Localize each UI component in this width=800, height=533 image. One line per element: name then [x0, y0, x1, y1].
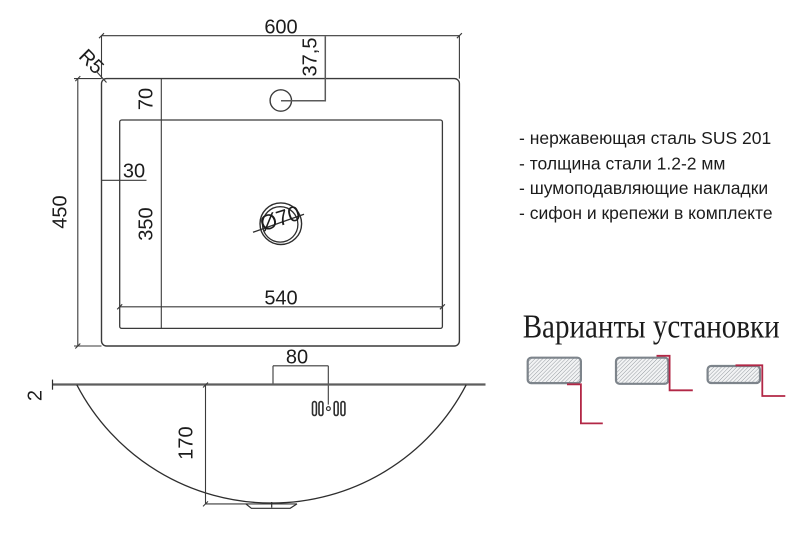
svg-text:Варианты установки: Варианты установки: [523, 308, 780, 345]
svg-text:37,5: 37,5: [300, 38, 322, 77]
svg-text:- сифон и крепежи в комплекте: - сифон и крепежи в комплекте: [519, 203, 773, 223]
svg-text:450: 450: [50, 195, 72, 228]
svg-text:350: 350: [136, 207, 158, 240]
svg-text:80: 80: [286, 347, 308, 369]
svg-text:70: 70: [136, 88, 158, 110]
svg-text:170: 170: [176, 426, 198, 459]
svg-text:540: 540: [264, 288, 297, 310]
svg-text:- шумоподавляющие накладки: - шумоподавляющие накладки: [519, 178, 768, 198]
svg-text:- нержавеющая сталь SUS 201: - нержавеющая сталь SUS 201: [519, 128, 771, 148]
svg-text:30: 30: [123, 161, 145, 183]
svg-text:2: 2: [25, 390, 47, 401]
svg-text:- толщина стали 1.2-2 мм: - толщина стали 1.2-2 мм: [519, 154, 725, 174]
svg-text:R5: R5: [74, 45, 108, 79]
svg-text:600: 600: [264, 17, 297, 39]
